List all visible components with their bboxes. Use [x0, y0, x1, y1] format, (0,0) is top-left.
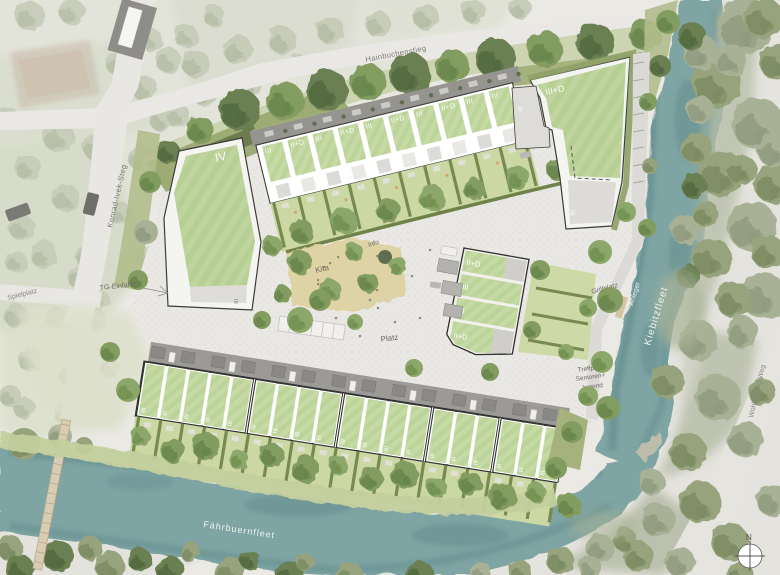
svg-text:III: III [234, 298, 240, 304]
svg-text:N: N [746, 533, 752, 542]
svg-text:III: III [570, 210, 577, 216]
